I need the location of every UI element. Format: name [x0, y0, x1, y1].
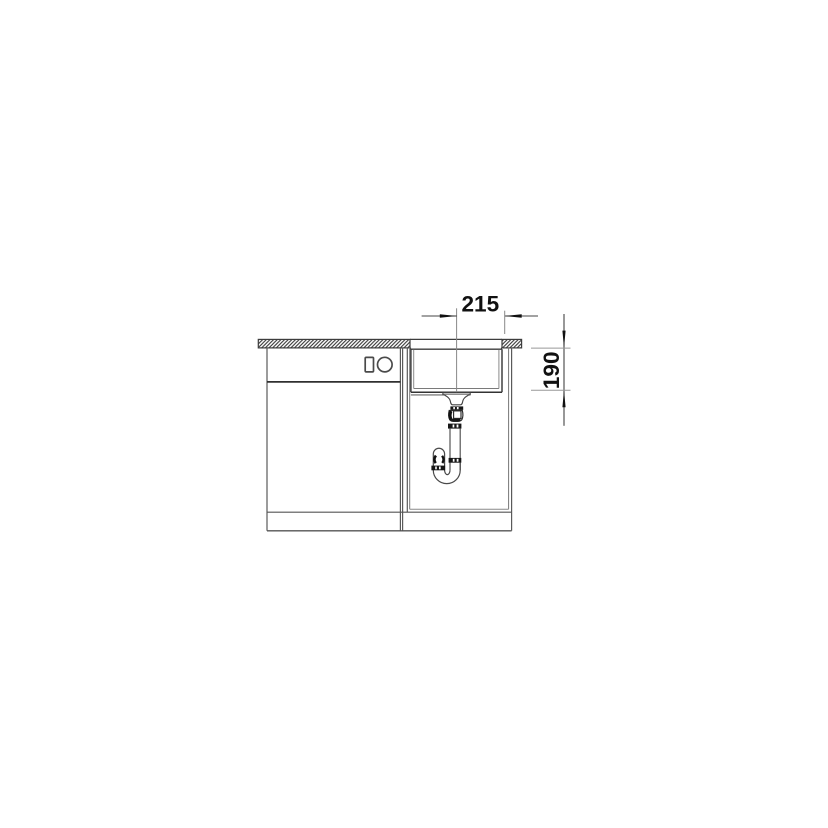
- svg-text:215: 215: [461, 292, 499, 317]
- svg-text:190: 190: [539, 351, 564, 389]
